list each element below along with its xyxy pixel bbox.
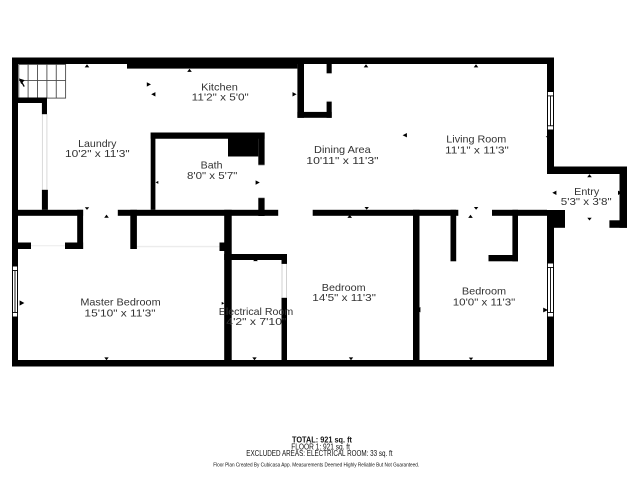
svg-text:5'3" x 3'8": 5'3" x 3'8" — [561, 197, 612, 208]
svg-text:Master Bedroom: Master Bedroom — [80, 298, 160, 309]
svg-text:Bedroom: Bedroom — [322, 283, 366, 294]
svg-text:11'1" x 11'3": 11'1" x 11'3" — [445, 146, 509, 157]
svg-text:14'5" x 11'3": 14'5" x 11'3" — [312, 293, 376, 304]
svg-text:Dining Area: Dining Area — [314, 145, 371, 156]
svg-text:10'2" x 11'3": 10'2" x 11'3" — [65, 149, 130, 160]
svg-text:Bedroom: Bedroom — [462, 286, 506, 297]
svg-text:Bath: Bath — [201, 161, 223, 172]
svg-text:EXCLUDED AREAS: ELECTRICAL ROO: EXCLUDED AREAS: ELECTRICAL ROOM: 33 sq. … — [246, 449, 393, 458]
svg-text:15'10" x 11'3": 15'10" x 11'3" — [84, 309, 155, 320]
svg-text:8'0" x 5'7": 8'0" x 5'7" — [187, 171, 238, 182]
svg-text:Floor Plan Created By Cubicasa: Floor Plan Created By Cubicasa App. Meas… — [213, 462, 419, 468]
svg-text:Living Room: Living Room — [446, 134, 506, 145]
svg-text:11'2" x 5'0": 11'2" x 5'0" — [192, 93, 249, 104]
svg-text:10'11" x 11'3": 10'11" x 11'3" — [306, 156, 379, 167]
svg-text:4'2" x 7'10": 4'2" x 7'10" — [226, 317, 286, 328]
svg-text:10'0" x 11'3": 10'0" x 11'3" — [453, 298, 516, 309]
